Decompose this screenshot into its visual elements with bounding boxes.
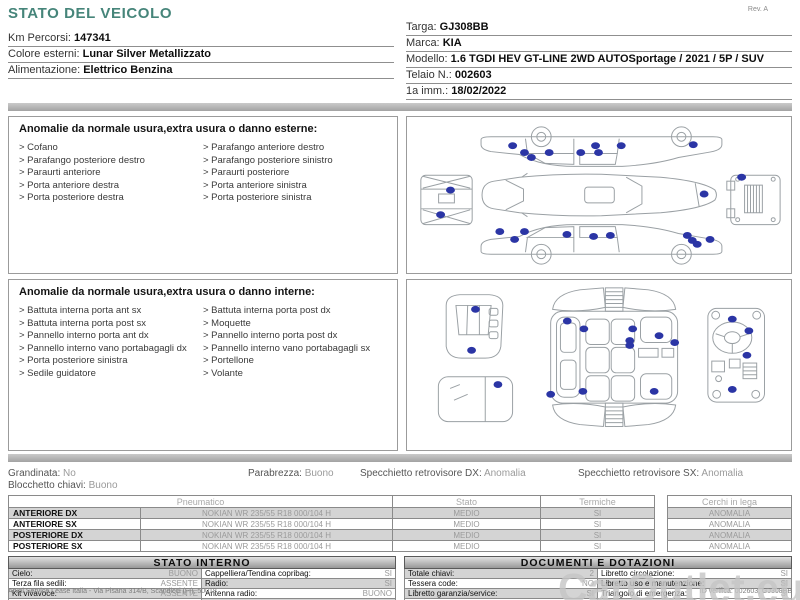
tyre-spec: NOKIAN WR 235/55 R18 000/104 H xyxy=(141,508,393,519)
alloy-wheels-header-row: Cerchi in lega xyxy=(668,496,792,508)
condition-summary-line1: Grandinata: NoParabrezza: BuonoSpecchiet… xyxy=(8,468,792,480)
damage-marker-dot xyxy=(495,228,504,235)
alloy-wheel-state: ANOMALIA xyxy=(668,541,792,552)
damage-marker-dot xyxy=(655,332,664,339)
tyre-termiche: SI xyxy=(541,530,655,541)
exterior-anomalies-list-left: > Cofano> Parafango posteriore destro> P… xyxy=(19,142,203,205)
damage-marker-dot xyxy=(743,352,752,359)
condition-item: Specchietto retrovisore DX: Anomalia xyxy=(360,468,578,480)
vehicle-info-right-row: 1a imm.: 18/02/2022 xyxy=(406,84,792,100)
damage-marker-dot xyxy=(436,211,445,218)
alloy-wheel-state: ANOMALIA xyxy=(668,519,792,530)
damage-marker-dot xyxy=(520,149,529,156)
condition-value: Buono xyxy=(305,468,334,479)
damage-marker-dot xyxy=(700,191,709,198)
interior-damage-diagram xyxy=(409,282,789,448)
damage-marker-dot xyxy=(728,316,737,323)
condition-item: Grandinata: No xyxy=(8,468,248,480)
damage-marker-dot xyxy=(670,339,679,346)
anomaly-item: > Parafango posteriore destro xyxy=(19,155,203,167)
info-value: Elettrico Benzina xyxy=(83,64,172,76)
condition-label: Parabrezza: xyxy=(248,468,305,479)
damage-marker-dot xyxy=(737,174,746,181)
info-value: 18/02/2022 xyxy=(451,85,506,97)
condition-item: Parabrezza: Buono xyxy=(248,468,360,480)
damage-marker-dot xyxy=(650,388,659,395)
alloy-wheel-state: ANOMALIA xyxy=(668,530,792,541)
damage-marker-dot xyxy=(579,325,588,332)
header-left-column: STATO DEL VEICOLO Km Percorsi: 147341Col… xyxy=(8,5,394,100)
condition-summary: Grandinata: NoParabrezza: BuonoSpecchiet… xyxy=(8,468,792,492)
anomaly-item: > Cofano xyxy=(19,142,203,154)
damage-marker-dot xyxy=(689,141,698,148)
damage-marker-dot xyxy=(728,386,737,393)
vehicle-info-right-row: Modello: 1.6 TGDI HEV GT-LINE 2WD AUTOSp… xyxy=(406,52,792,68)
tyre-spec: NOKIAN WR 235/55 R18 000/104 H xyxy=(141,541,393,552)
page-footer: Arval Service Lease Italia - Via Pisana … xyxy=(8,588,792,595)
damage-marker-dot xyxy=(446,187,455,194)
field-label: Tessera code: xyxy=(408,579,458,588)
documenti-cell: Libretto circolazione:SI xyxy=(598,569,792,579)
field-label: Cappelliera/Tendina copribag: xyxy=(205,569,311,578)
vehicle-info-right-row: Marca: KIA xyxy=(406,36,792,52)
header-right-column: Rev. A Targa: GJ308BBMarca: KIAModello: … xyxy=(406,5,792,100)
tyre-col-stato: Stato xyxy=(393,496,541,508)
field-value: SI xyxy=(384,569,392,578)
interior-anomalies-list-right: > Battuta interna porta post dx> Moquett… xyxy=(203,305,387,380)
stato-interno-cell: Cielo:BUONO xyxy=(8,569,202,579)
info-label: Marca: xyxy=(406,37,443,49)
tyre-row: ANTERIORE DXNOKIAN WR 235/55 R18 000/104… xyxy=(9,508,655,519)
tyre-row: POSTERIORE SXNOKIAN WR 235/55 R18 000/10… xyxy=(9,541,655,552)
field-label: Cielo: xyxy=(12,569,32,578)
damage-marker-dot xyxy=(508,142,517,149)
tyre-stato: MEDIO xyxy=(393,541,541,552)
section-divider-bar xyxy=(8,103,792,111)
damage-marker-dot xyxy=(576,149,585,156)
vehicle-info-left-row: Alimentazione: Elettrico Benzina xyxy=(8,63,394,79)
anomaly-item: > Moquette xyxy=(203,318,387,330)
footer-page-number: 1 xyxy=(384,588,447,595)
anomaly-item: > Paraurti posteriore xyxy=(203,167,387,179)
vehicle-info-left: Km Percorsi: 147341Colore esterni: Lunar… xyxy=(8,31,394,79)
alloy-wheel-row: ANOMALIA xyxy=(668,530,792,541)
damage-marker-dot xyxy=(594,149,603,156)
tyre-position: POSTERIORE DX xyxy=(9,530,141,541)
condition-item: Specchietto retrovisore SX: Anomalia xyxy=(578,468,792,480)
damage-marker-dot xyxy=(744,327,753,334)
info-label: Alimentazione: xyxy=(8,64,83,76)
page-title: STATO DEL VEICOLO xyxy=(8,5,394,22)
tyre-termiche: SI xyxy=(541,541,655,552)
condition-summary-line2: Blocchetto chiavi: Buono xyxy=(8,480,792,492)
info-value: 1.6 TGDI HEV GT-LINE 2WD AUTOSportage / … xyxy=(451,53,764,65)
damage-marker-dot xyxy=(562,231,571,238)
damage-marker-dot xyxy=(706,236,715,243)
interior-anomalies-panel: Anomalie da normale usura,extra usura o … xyxy=(8,279,398,451)
damage-marker-dot xyxy=(520,228,529,235)
tyre-position: ANTERIORE SX xyxy=(9,519,141,530)
anomaly-item: > Pannello interno porta ant dx xyxy=(19,330,203,342)
damage-marker-dot xyxy=(510,236,519,243)
field-value: ASSENTE xyxy=(161,579,198,588)
condition-label: Specchietto retrovisore DX: xyxy=(360,468,484,479)
info-label: Colore esterni: xyxy=(8,48,83,60)
interior-diagram-panel xyxy=(406,279,792,451)
anomaly-item: > Parafango anteriore destro xyxy=(203,142,387,154)
tyre-col-termiche: Termiche xyxy=(541,496,655,508)
field-value: 2 xyxy=(590,569,594,578)
anomaly-item: > Porta posteriore sinistra xyxy=(19,355,203,367)
tyre-section: Pneumatico Stato Termiche ANTERIORE DXNO… xyxy=(8,495,792,552)
tyre-table-header-row: Pneumatico Stato Termiche xyxy=(9,496,655,508)
info-label: Telaio N.: xyxy=(406,69,455,81)
damage-marker-dot xyxy=(589,233,598,240)
stato-interno-title: STATO INTERNO xyxy=(8,556,396,569)
vehicle-info-right-row: Targa: GJ308BB xyxy=(406,20,792,36)
anomaly-item: > Volante xyxy=(203,368,387,380)
exterior-anomalies-list-right: > Parafango anteriore destro> Parafango … xyxy=(203,142,387,205)
info-label: 1a imm.: xyxy=(406,85,451,97)
field-label: Libretto circolazione: xyxy=(601,569,674,578)
vehicle-info-left-row: Km Percorsi: 147341 xyxy=(8,31,394,47)
exterior-damage-diagram xyxy=(409,119,789,271)
alloy-wheel-row: ANOMALIA xyxy=(668,541,792,552)
anomaly-item: > Parafango posteriore sinistro xyxy=(203,155,387,167)
anomaly-item: > Battuta interna porta ant sx xyxy=(19,305,203,317)
condition-label: Specchietto retrovisore SX: xyxy=(578,468,701,479)
exterior-diagram-panel xyxy=(406,116,792,274)
field-value: SI xyxy=(780,579,788,588)
tyre-stato: MEDIO xyxy=(393,519,541,530)
condition-value: Anomalia xyxy=(701,468,743,479)
damage-marker-dot xyxy=(591,142,600,149)
interior-section: Anomalie da normale usura,extra usura o … xyxy=(8,279,792,451)
alloy-wheel-row: ANOMALIA xyxy=(668,508,792,519)
condition-value: Buono xyxy=(89,480,118,491)
exterior-anomalies-panel: Anomalie da normale usura,extra usura o … xyxy=(8,116,398,274)
vehicle-condition-report-page: STATO DEL VEICOLO Km Percorsi: 147341Col… xyxy=(0,0,800,600)
exterior-damage-markers xyxy=(436,141,746,248)
tyre-termiche: SI xyxy=(541,508,655,519)
anomaly-item: > Porta anteriore sinistra xyxy=(203,180,387,192)
interior-damage-markers xyxy=(467,306,753,398)
damage-marker-dot xyxy=(467,347,476,354)
tyre-row: ANTERIORE SXNOKIAN WR 235/55 R18 000/104… xyxy=(9,519,655,530)
condition-label: Blocchetto chiavi: xyxy=(8,480,89,491)
damage-marker-dot xyxy=(578,388,587,395)
anomaly-item: > Paraurti anteriore xyxy=(19,167,203,179)
tyre-stato: MEDIO xyxy=(393,508,541,519)
alloy-wheel-row: ANOMALIA xyxy=(668,519,792,530)
anomaly-item: > Pannello interno vano portabagagli sx xyxy=(203,343,387,355)
anomaly-item: > Pannello interno vano portabagagli dx xyxy=(19,343,203,355)
info-value: 147341 xyxy=(74,32,111,44)
footer-document-id: ID verifica: 002603, GJ308BB xyxy=(447,588,792,595)
vehicle-info-left-row: Colore esterni: Lunar Silver Metallizzat… xyxy=(8,47,394,63)
documenti-dotazioni-title: DOCUMENTI E DOTAZIONI xyxy=(404,556,792,569)
info-value: 002603 xyxy=(455,69,492,81)
field-label: Terza fila sedili: xyxy=(12,579,67,588)
interior-anomalies-heading: Anomalie da normale usura,extra usura o … xyxy=(19,286,387,298)
footer-company-address: Arval Service Lease Italia - Via Pisana … xyxy=(8,588,384,595)
tyre-position: ANTERIORE DX xyxy=(9,508,141,519)
info-value: KIA xyxy=(443,37,462,49)
anomaly-item: > Porta posteriore sinistra xyxy=(203,192,387,204)
stato-interno-cell: Cappelliera/Tendina copribag:SI xyxy=(202,569,396,579)
anomaly-item: > Porta posteriore destra xyxy=(19,192,203,204)
damage-marker-dot xyxy=(527,154,536,161)
vehicle-info-right-row: Telaio N.: 002603 xyxy=(406,68,792,84)
damage-marker-dot xyxy=(546,391,555,398)
anomaly-item: > Battuta interna porta post sx xyxy=(19,318,203,330)
field-value: SI xyxy=(780,569,788,578)
info-value: GJ308BB xyxy=(440,21,489,33)
condition-label: Grandinata: xyxy=(8,468,63,479)
info-label: Modello: xyxy=(406,53,451,65)
interior-anomalies-list-left: > Battuta interna porta ant sx> Battuta … xyxy=(19,305,203,380)
info-label: Targa: xyxy=(406,21,440,33)
documenti-cell: Totale chiavi:2 xyxy=(404,569,598,579)
documenti-row: Totale chiavi:2Libretto circolazione:SI xyxy=(404,569,792,579)
stato-interno-row: Cielo:BUONOCappelliera/Tendina copribag:… xyxy=(8,569,396,579)
damage-marker-dot xyxy=(693,241,702,248)
tyre-table: Pneumatico Stato Termiche ANTERIORE DXNO… xyxy=(8,495,655,552)
alloy-wheels-col: Cerchi in lega xyxy=(668,496,792,508)
field-label: Totale chiavi: xyxy=(408,569,454,578)
field-value: NO xyxy=(582,579,594,588)
header-info-section: STATO DEL VEICOLO Km Percorsi: 147341Col… xyxy=(0,0,800,100)
tyre-spec: NOKIAN WR 235/55 R18 000/104 H xyxy=(141,530,393,541)
damage-marker-dot xyxy=(628,325,637,332)
anomaly-item: > Battuta interna porta post dx xyxy=(203,305,387,317)
condition-value: Anomalia xyxy=(484,468,526,479)
damage-marker-dot xyxy=(617,142,626,149)
anomaly-item: > Sedile guidatore xyxy=(19,368,203,380)
vehicle-info-right: Targa: GJ308BBMarca: KIAModello: 1.6 TGD… xyxy=(406,20,792,100)
anomaly-item: > Porta anteriore destra xyxy=(19,180,203,192)
condition-item: Blocchetto chiavi: Buono xyxy=(8,480,248,492)
tyre-col-pneumatico: Pneumatico xyxy=(9,496,393,508)
field-label: Radio: xyxy=(205,579,228,588)
condition-value: No xyxy=(63,468,76,479)
damage-marker-dot xyxy=(625,342,634,349)
damage-marker-dot xyxy=(545,149,554,156)
field-value: SI xyxy=(384,579,392,588)
tyre-stato: MEDIO xyxy=(393,530,541,541)
tyre-position: POSTERIORE SX xyxy=(9,541,141,552)
exterior-section: Anomalie da normale usura,extra usura o … xyxy=(8,116,792,274)
info-label: Km Percorsi: xyxy=(8,32,74,44)
info-value: Lunar Silver Metallizzato xyxy=(83,48,211,60)
damage-marker-dot xyxy=(494,381,503,388)
field-label: Libretto uso e manutenzione: xyxy=(601,579,704,588)
field-value: BUONO xyxy=(169,569,198,578)
alloy-wheel-state: ANOMALIA xyxy=(668,508,792,519)
revision-label: Rev. A xyxy=(748,6,768,13)
tyre-row: POSTERIORE DXNOKIAN WR 235/55 R18 000/10… xyxy=(9,530,655,541)
tyre-termiche: SI xyxy=(541,519,655,530)
alloy-wheels-table: Cerchi in lega ANOMALIAANOMALIAANOMALIAA… xyxy=(667,495,792,552)
exterior-anomalies-heading: Anomalie da normale usura,extra usura o … xyxy=(19,123,387,135)
damage-marker-dot xyxy=(606,232,615,239)
damage-marker-dot xyxy=(471,306,480,313)
anomaly-item: > Pannello interno porta post dx xyxy=(203,330,387,342)
section-divider-bar xyxy=(8,454,792,462)
tyre-spec: NOKIAN WR 235/55 R18 000/104 H xyxy=(141,519,393,530)
anomaly-item: > Portellone xyxy=(203,355,387,367)
damage-marker-dot xyxy=(563,318,572,325)
